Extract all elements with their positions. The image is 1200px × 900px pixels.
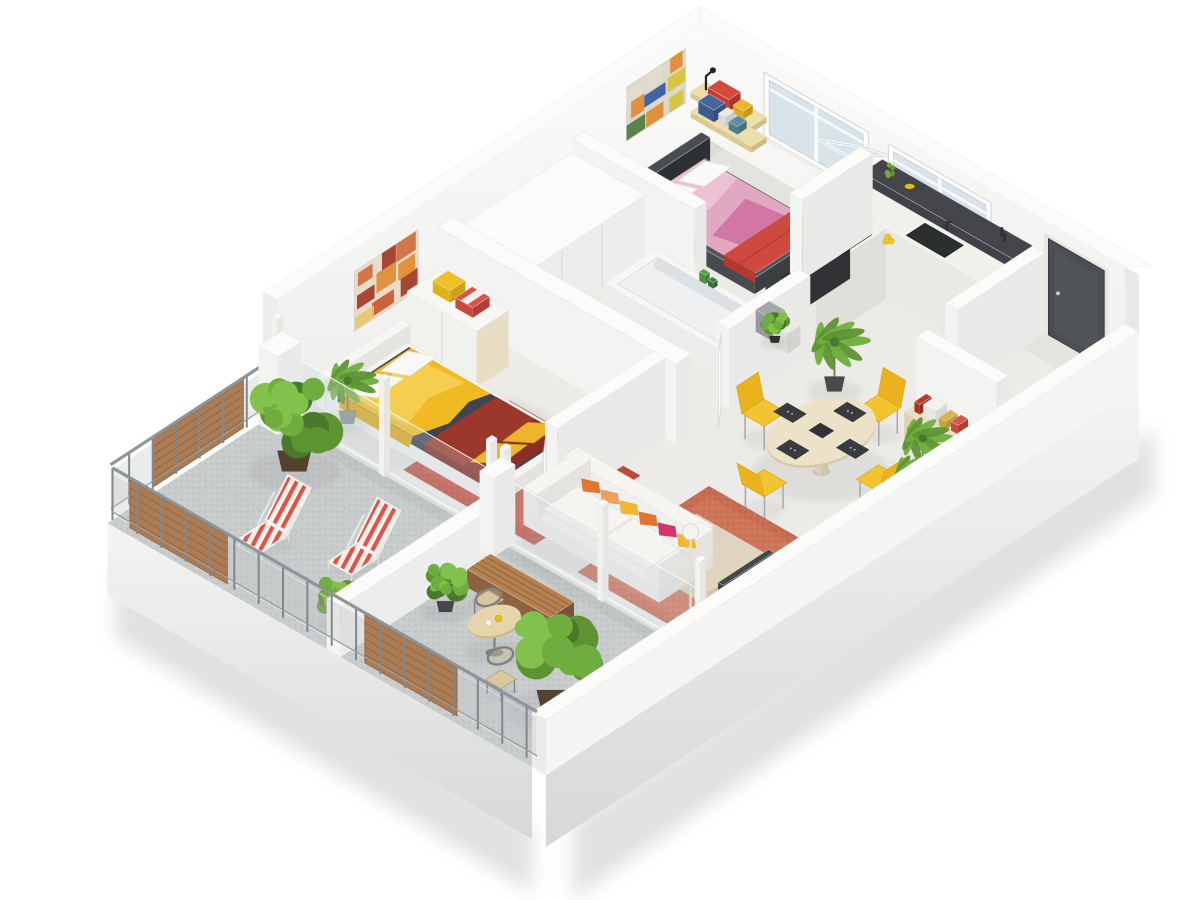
scene-root [107,6,1154,900]
divider-pillar [480,457,516,557]
apartment-3d-floor-plan [0,0,1200,900]
potted-tree [421,563,469,623]
screenshot-root [0,0,1200,900]
bathroom-door [718,333,721,428]
